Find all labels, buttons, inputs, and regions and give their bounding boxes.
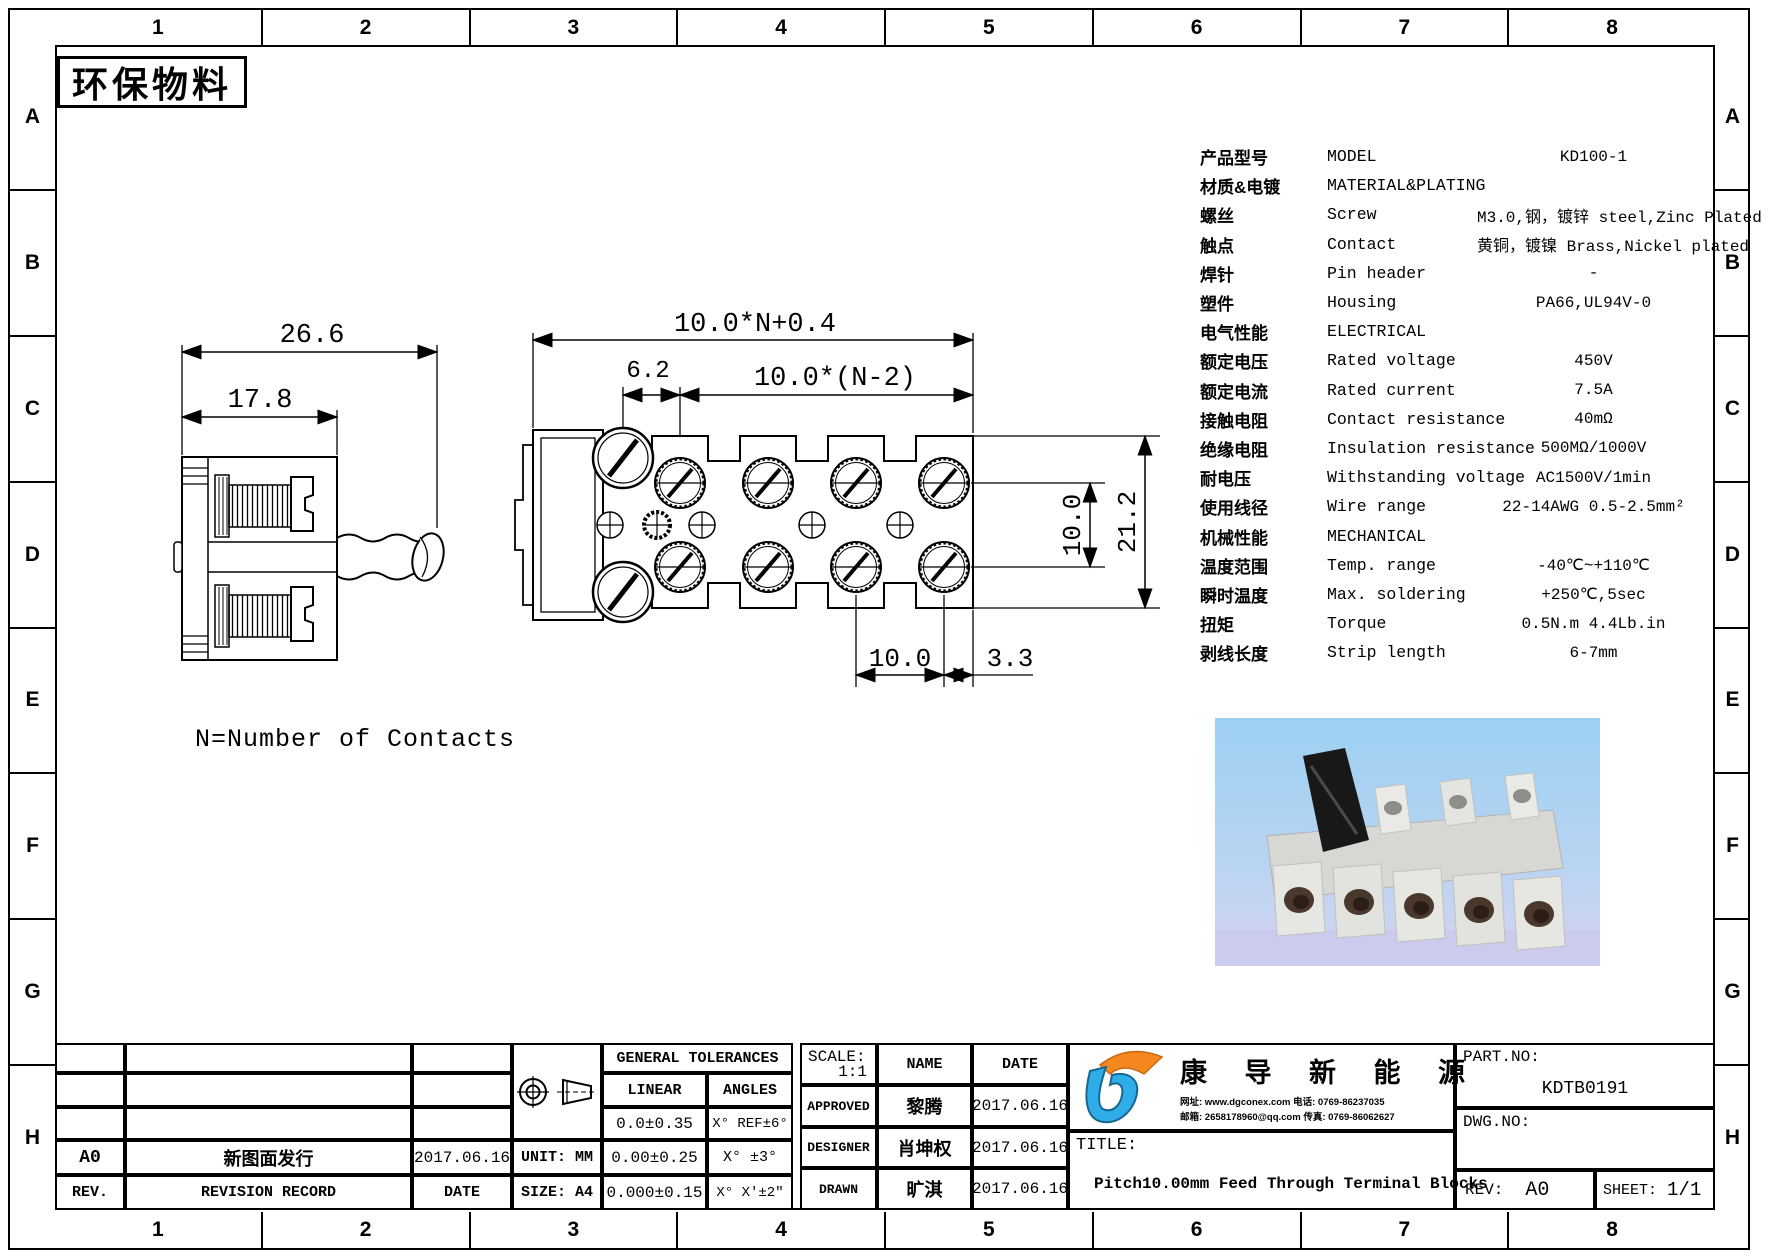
spec-row: 绝缘电阻Insulation resistance500MΩ/1000V — [1200, 434, 1712, 463]
unit-text: UNIT: MM — [521, 1149, 593, 1166]
revision-rev-value: A0 — [55, 1140, 125, 1175]
drawn-date: 2017.06.16 — [972, 1168, 1068, 1210]
revision-empty-cell — [125, 1107, 412, 1140]
drawn-name: 旷淇 — [877, 1168, 972, 1210]
spec-label-zh: 使用线径 — [1200, 494, 1327, 519]
revision-empty-cell — [412, 1043, 512, 1073]
zone-row: D — [10, 481, 55, 627]
tolerance-linear-1: 0.0±0.35 — [602, 1107, 707, 1140]
company-logo-box: 康 导 新 能 源 网址: www.dgconex.com 电话: 0769-8… — [1068, 1043, 1455, 1131]
zone-col: 7 — [1300, 10, 1508, 45]
spec-row: 电气性能ELECTRICAL — [1200, 317, 1712, 346]
dim-pitch: 10.0 — [869, 644, 931, 674]
spec-row: 接触电阻Contact resistance40mΩ — [1200, 405, 1712, 434]
spec-row: 温度范围Temp. range-40℃~+110℃ — [1200, 551, 1712, 580]
spec-label-zh: 耐电压 — [1200, 465, 1327, 490]
contact2-text: 邮箱: 2658178960@qq.com 传真: 0769-86062627 — [1180, 1112, 1395, 1123]
spec-label-en: Contact resistance — [1327, 410, 1477, 429]
dim-offset: 6.2 — [626, 358, 669, 385]
person-date-text: 2017.06.16 — [972, 1097, 1068, 1115]
revision-empty-cell — [125, 1043, 412, 1073]
revision-empty-cell — [412, 1073, 512, 1107]
zone-row: H — [10, 1064, 55, 1210]
spec-value: 22-14AWG 0.5-2.5mm² — [1477, 498, 1710, 516]
spec-value: AC1500V/1min — [1477, 469, 1710, 487]
approved-label: APPROVED — [800, 1085, 877, 1127]
tolerance-value: 0.00±0.25 — [611, 1149, 697, 1167]
spec-label-en: Contact — [1327, 235, 1477, 254]
person-date-text: 2017.06.16 — [972, 1180, 1068, 1198]
spec-label-zh: 额定电压 — [1200, 348, 1327, 373]
tolerances-angles-label: ANGLES — [707, 1073, 793, 1107]
dim-height: 21.2 — [1113, 491, 1143, 553]
tolerances-header-text: GENERAL TOLERANCES — [616, 1050, 778, 1067]
zone-col: 6 — [1092, 1212, 1300, 1248]
zone-col: 8 — [1507, 1212, 1715, 1248]
spec-label-zh: 触点 — [1200, 232, 1327, 257]
revision-empty-cell — [55, 1043, 125, 1073]
designer-label: DESIGNER — [800, 1127, 877, 1168]
spec-label-en: Wire range — [1327, 497, 1477, 516]
approved-name: 黎腾 — [877, 1085, 972, 1127]
dim-row-gap: 10.0 — [1058, 494, 1088, 556]
spec-label-en: Housing — [1327, 293, 1477, 312]
zone-row: G — [1715, 918, 1750, 1064]
spec-value: 500MΩ/1000V — [1477, 439, 1710, 457]
zone-row: H — [1715, 1064, 1750, 1210]
angles-label-text: ANGLES — [723, 1082, 777, 1099]
tolerance-angles-2: X° ±3° — [707, 1140, 793, 1175]
scale-value-text: 1:1 — [838, 1063, 867, 1081]
zone-row: F — [10, 772, 55, 918]
spec-label-zh: 产品型号 — [1200, 144, 1327, 169]
spec-label-en: Torque — [1327, 614, 1477, 633]
spec-label-zh: 机械性能 — [1200, 524, 1327, 549]
spec-label-zh: 焊针 — [1200, 261, 1327, 286]
company-contact-line2: 邮箱: 2658178960@qq.com 传真: 0769-86062627 — [1180, 1109, 1480, 1123]
spec-label-zh: 额定电流 — [1200, 378, 1327, 403]
spec-row: 剥线长度Strip length6-7mm — [1200, 638, 1712, 667]
tolerance-angles-3: X° X'±2" — [707, 1175, 793, 1210]
zone-row: E — [10, 627, 55, 773]
zone-col: 6 — [1092, 10, 1300, 45]
spec-label-zh: 瞬时温度 — [1200, 582, 1327, 607]
date-header-text: DATE — [1002, 1056, 1038, 1073]
spec-value: -40℃~+110℃ — [1477, 555, 1710, 575]
dwg-no-box: DWG.NO: — [1455, 1108, 1715, 1170]
side-view-drawing: 26.6 17.8 — [120, 280, 480, 680]
role-text: DESIGNER — [807, 1140, 869, 1155]
rev-box: REV: A0 — [1455, 1170, 1595, 1210]
spec-row: 触点Contact黄铜，镀镍 Brass,Nickel plated — [1200, 230, 1712, 259]
zone-row: F — [1715, 772, 1750, 918]
spec-label-en: Rated voltage — [1327, 351, 1477, 370]
zone-row: C — [1715, 335, 1750, 481]
contacts-note-text: N=Number of Contacts — [195, 725, 515, 754]
zone-col: 5 — [884, 1212, 1092, 1248]
dim-overall: 10.0*N+0.4 — [674, 310, 836, 340]
tolerances-linear-label: LINEAR — [602, 1073, 707, 1107]
dim-edge: 3.3 — [987, 644, 1034, 674]
spec-row: 塑件HousingPA66,UL94V-0 — [1200, 288, 1712, 317]
tolerance-angles-1: X° REF±6° — [707, 1107, 793, 1140]
contacts-note: N=Number of Contacts — [195, 725, 515, 754]
person-name-text: 肖坤权 — [898, 1135, 952, 1161]
company-logo-icon — [1076, 1047, 1168, 1127]
spec-row: 瞬时温度Max. soldering+250℃,5sec — [1200, 580, 1712, 609]
zone-col: 1 — [55, 1212, 261, 1248]
spec-value: 450V — [1477, 352, 1710, 370]
spec-label-en: Withstanding voltage — [1327, 468, 1477, 487]
spec-value: 40mΩ — [1477, 410, 1710, 428]
name-header: NAME — [877, 1043, 972, 1085]
zone-row: E — [1715, 627, 1750, 773]
spec-row: 螺丝ScrewM3.0,钢，镀锌 steel,Zinc Plated — [1200, 200, 1712, 229]
spec-label-zh: 螺丝 — [1200, 202, 1327, 227]
approved-date: 2017.06.16 — [972, 1085, 1068, 1127]
spec-label-zh: 塑件 — [1200, 290, 1327, 315]
dwg-no-label-text: DWG.NO: — [1463, 1113, 1530, 1131]
projection-symbol-icon — [517, 1071, 597, 1113]
spec-row: 扭矩Torque0.5N.m 4.4Lb.in — [1200, 609, 1712, 638]
title-label-text: TITLE: — [1076, 1136, 1137, 1155]
spec-row: 机械性能MECHANICAL — [1200, 521, 1712, 550]
revision-empty-cell — [55, 1073, 125, 1107]
zone-col: 3 — [469, 10, 677, 45]
zone-row: A — [1715, 45, 1750, 189]
spec-row: 产品型号MODELKD100-1 — [1200, 142, 1712, 171]
product-photo — [1215, 718, 1600, 966]
person-date-text: 2017.06.16 — [972, 1139, 1068, 1157]
zone-col: 8 — [1507, 10, 1715, 45]
zone-col: 2 — [261, 1212, 469, 1248]
name-header-text: NAME — [906, 1056, 942, 1073]
spec-row: 材质&电镀MATERIAL&PLATING — [1200, 171, 1712, 200]
zone-col: 2 — [261, 10, 469, 45]
rev-box-label-text: REV: — [1465, 1181, 1503, 1199]
company-contact-line1: 网址: www.dgconex.com 电话: 0769-86237035 — [1180, 1094, 1480, 1108]
revision-rev-label: REV. — [55, 1175, 125, 1210]
spec-row: 使用线径Wire range22-14AWG 0.5-2.5mm² — [1200, 492, 1712, 521]
rev-label-text: REV. — [72, 1184, 108, 1201]
scale-cell: SCALE: 1:1 — [800, 1043, 877, 1085]
spec-label-en: MECHANICAL — [1327, 527, 1477, 546]
date-value-text: 2017.06.16 — [414, 1149, 510, 1167]
engineering-drawing-page: { "zones": { "cols": ["1","2","3","4","5… — [0, 0, 1778, 1257]
tolerance-value: X° REF±6° — [712, 1116, 788, 1132]
role-text: DRAWN — [819, 1182, 858, 1197]
spec-value: - — [1477, 264, 1710, 282]
spec-label-en: MODEL — [1327, 147, 1477, 166]
spec-label-en: Insulation resistance — [1327, 439, 1477, 458]
tolerance-value: 0.000±0.15 — [606, 1184, 702, 1202]
dim-17-8: 17.8 — [228, 386, 293, 416]
revision-date-value: 2017.06.16 — [412, 1140, 512, 1175]
revision-record-label: REVISION RECORD — [125, 1175, 412, 1210]
tolerance-value: 0.0±0.35 — [616, 1115, 693, 1133]
sheet-box-value-text: 1/1 — [1667, 1179, 1701, 1201]
date-header: DATE — [972, 1043, 1068, 1085]
unit-cell: UNIT: MM — [512, 1140, 602, 1175]
tolerance-linear-2: 0.00±0.25 — [602, 1140, 707, 1175]
size-cell: SIZE: A4 — [512, 1175, 602, 1210]
zone-col: 1 — [55, 10, 261, 45]
zone-col: 5 — [884, 10, 1092, 45]
eco-material-stamp: 环保物料 — [57, 56, 247, 108]
tolerance-value: X° X'±2" — [716, 1185, 783, 1201]
revision-empty-cell — [125, 1073, 412, 1107]
zone-row: G — [10, 918, 55, 1064]
zone-rows-left: A B C D E F G H — [10, 45, 55, 1210]
dim-span: 10.0*(N-2) — [754, 364, 916, 394]
spec-table: 产品型号MODELKD100-1 材质&电镀MATERIAL&PLATING 螺… — [1200, 142, 1712, 667]
sheet-box: SHEET: 1/1 — [1595, 1170, 1715, 1210]
designer-name: 肖坤权 — [877, 1127, 972, 1168]
spec-value: 0.5N.m 4.4Lb.in — [1477, 615, 1710, 633]
spec-value: 黄铜，镀镍 Brass,Nickel plated — [1477, 232, 1710, 256]
drawing-title-box: TITLE: Pitch10.00mm Feed Through Termina… — [1068, 1131, 1455, 1210]
spec-value: 6-7mm — [1477, 644, 1710, 662]
spec-label-en: Temp. range — [1327, 556, 1477, 575]
zone-col: 4 — [676, 1212, 884, 1248]
revision-empty-cell — [55, 1107, 125, 1140]
revision-date-label: DATE — [412, 1175, 512, 1210]
spec-label-zh: 材质&电镀 — [1200, 173, 1327, 198]
rev-value-text: A0 — [79, 1148, 101, 1168]
linear-label-text: LINEAR — [627, 1082, 681, 1099]
zone-row: C — [10, 335, 55, 481]
spec-row: 额定电流Rated current7.5A — [1200, 376, 1712, 405]
zone-row: A — [10, 45, 55, 189]
rev-box-value-text: A0 — [1525, 1179, 1549, 1202]
spec-label-en: Pin header — [1327, 264, 1477, 283]
spec-label-en: Max. soldering — [1327, 585, 1477, 604]
size-text: SIZE: A4 — [521, 1184, 593, 1201]
spec-value: KD100-1 — [1477, 148, 1710, 166]
drawing-title-text: Pitch10.00mm Feed Through Terminal Block… — [1094, 1175, 1488, 1193]
dim-26-6: 26.6 — [280, 321, 345, 351]
record-value-text: 新图面发行 — [224, 1145, 314, 1171]
eco-material-stamp-text: 环保物料 — [72, 56, 232, 108]
zone-col: 3 — [469, 1212, 677, 1248]
spec-row: 焊针Pin header- — [1200, 259, 1712, 288]
spec-row: 耐电压Withstanding voltageAC1500V/1min — [1200, 463, 1712, 492]
company-name-text: 康 导 新 能 源 — [1180, 1058, 1480, 1088]
part-no-value-text: KDTB0191 — [1457, 1079, 1713, 1099]
zone-col: 4 — [676, 10, 884, 45]
company-name: 康 导 新 能 源 — [1180, 1051, 1480, 1090]
spec-row: 额定电压Rated voltage450V — [1200, 346, 1712, 375]
designer-date: 2017.06.16 — [972, 1127, 1068, 1168]
zone-row: B — [10, 189, 55, 335]
spec-value: +250℃,5sec — [1477, 584, 1710, 604]
tolerance-linear-3: 0.000±0.15 — [602, 1175, 707, 1210]
role-text: APPROVED — [807, 1099, 869, 1114]
spec-value: 7.5A — [1477, 381, 1710, 399]
part-no-label-text: PART.NO: — [1463, 1048, 1540, 1066]
tolerance-value: X° ±3° — [723, 1149, 777, 1166]
zone-columns-bottom: 1 2 3 4 5 6 7 8 — [55, 1212, 1715, 1248]
spec-label-zh: 剥线长度 — [1200, 640, 1327, 665]
spec-value: PA66,UL94V-0 — [1477, 294, 1710, 312]
spec-label-en: ELECTRICAL — [1327, 322, 1477, 341]
drawn-label: DRAWN — [800, 1168, 877, 1210]
date-label-text: DATE — [444, 1184, 480, 1201]
spec-label-zh: 接触电阻 — [1200, 407, 1327, 432]
zone-col: 7 — [1300, 1212, 1508, 1248]
revision-empty-cell — [412, 1107, 512, 1140]
person-name-text: 旷淇 — [907, 1176, 943, 1202]
tolerances-header: GENERAL TOLERANCES — [602, 1043, 793, 1073]
revision-record-value: 新图面发行 — [125, 1140, 412, 1175]
record-label-text: REVISION RECORD — [201, 1184, 336, 1201]
sheet-box-label-text: SHEET: — [1603, 1182, 1657, 1199]
person-name-text: 黎腾 — [907, 1093, 943, 1119]
spec-value: M3.0,钢，镀锌 steel,Zinc Plated — [1477, 203, 1710, 227]
part-no-box: PART.NO: KDTB0191 — [1455, 1043, 1715, 1108]
projection-symbol-cell — [512, 1043, 602, 1140]
contact1-text: 网址: www.dgconex.com 电话: 0769-86237035 — [1180, 1097, 1385, 1108]
spec-label-en: MATERIAL&PLATING — [1327, 176, 1477, 195]
spec-label-zh: 温度范围 — [1200, 553, 1327, 578]
spec-label-en: Screw — [1327, 205, 1477, 224]
spec-label-zh: 扭矩 — [1200, 611, 1327, 636]
spec-label-zh: 绝缘电阻 — [1200, 436, 1327, 461]
spec-label-en: Strip length — [1327, 643, 1477, 662]
zone-columns-top: 1 2 3 4 5 6 7 8 — [55, 10, 1715, 45]
top-view-drawing: 10.0*N+0.4 10.0*(N-2) 6.2 — [505, 295, 1205, 700]
spec-label-en: Rated current — [1327, 381, 1477, 400]
title-block: A0 新图面发行 2017.06.16 REV. REVISION RECORD… — [55, 1035, 1715, 1210]
zone-row: D — [1715, 481, 1750, 627]
spec-label-zh: 电气性能 — [1200, 319, 1327, 344]
